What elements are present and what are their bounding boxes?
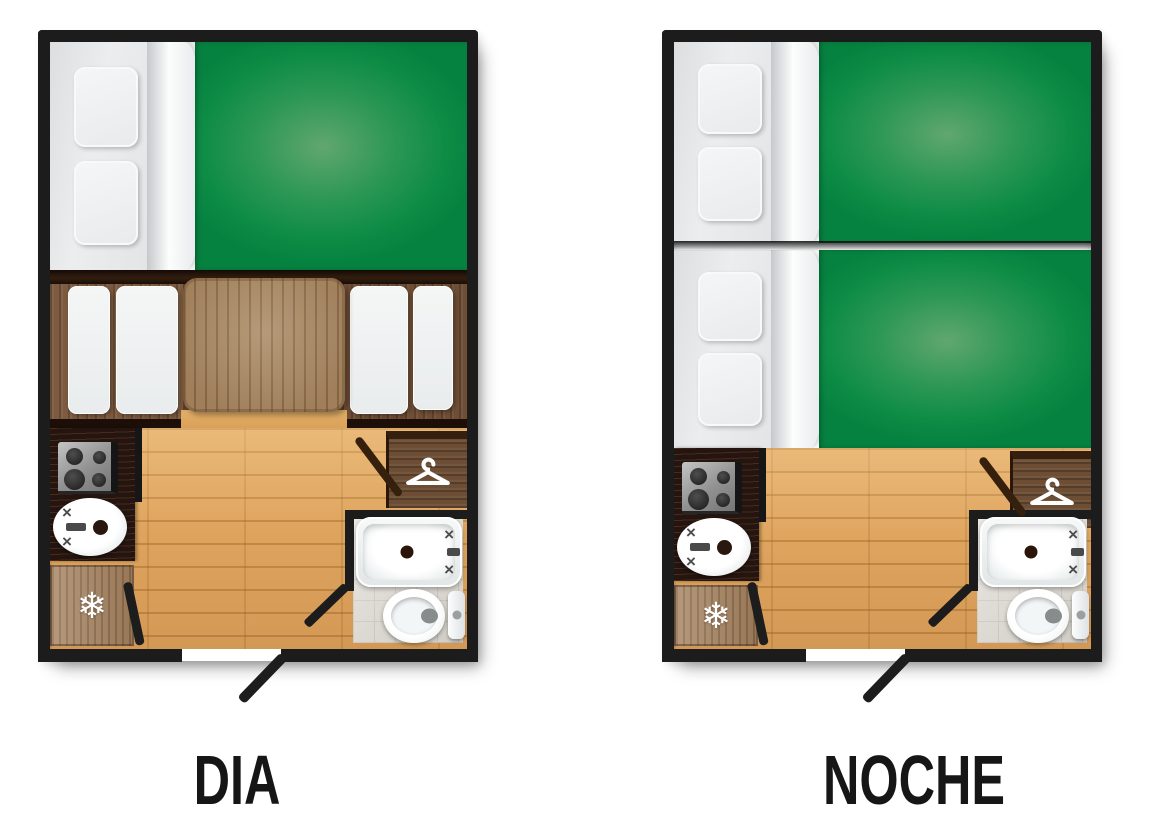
bed-folded-edge <box>147 42 196 270</box>
wall-top <box>662 30 1102 42</box>
wall-top <box>38 30 478 42</box>
plan-interior: × × ❄ <box>674 42 1091 649</box>
basin-drain <box>400 546 413 559</box>
snowflake-icon: ❄ <box>77 588 107 624</box>
bench-cushion <box>68 286 110 414</box>
wall-bottom-left <box>662 649 806 662</box>
wall-left <box>662 30 674 662</box>
toilet-button <box>452 611 461 620</box>
pillow <box>698 353 762 426</box>
stove <box>58 442 118 494</box>
bench-cushion <box>350 286 408 414</box>
faucet-spout <box>690 543 710 551</box>
bed-folded-edge <box>771 42 820 243</box>
floorplan-dia: × × ❄ <box>38 30 478 662</box>
wall-right <box>1091 30 1102 662</box>
fridge: ❄ <box>674 585 758 646</box>
floorplan-noche: × × ❄ <box>662 30 1102 662</box>
burner <box>64 469 85 490</box>
burner <box>66 448 83 465</box>
cross-valve-icon: × <box>62 504 72 521</box>
plan-interior: × × ❄ <box>50 42 467 649</box>
pillow <box>74 161 138 245</box>
cross-valve-icon: × <box>686 553 696 570</box>
bathroom-wall <box>345 510 354 591</box>
wall-bottom-left <box>38 649 182 662</box>
hanger-icon <box>1025 475 1079 513</box>
toilet-button <box>1076 611 1085 620</box>
cross-valve-icon: × <box>1068 526 1078 543</box>
wall-bottom-right <box>281 649 478 662</box>
cross-valve-icon: × <box>444 561 454 578</box>
cross-valve-icon: × <box>62 533 72 550</box>
pillow <box>74 67 138 147</box>
faucet-spout <box>66 523 86 531</box>
bath-basin: × × <box>356 517 462 587</box>
toilet-tank <box>1072 591 1089 639</box>
dinette-area <box>50 284 467 428</box>
converted-bed <box>674 250 1091 448</box>
bed-blanket <box>819 42 1091 243</box>
bed-blanket <box>195 42 467 270</box>
bath-basin: × × <box>980 517 1086 587</box>
sink-drain <box>93 520 108 535</box>
double-bed <box>674 42 1091 243</box>
double-bed <box>50 42 467 270</box>
pillow <box>698 272 762 341</box>
faucet-spout <box>1071 548 1084 556</box>
pillow <box>698 64 762 134</box>
snowflake-icon: ❄ <box>701 598 731 634</box>
bench-cushion <box>116 286 178 414</box>
toilet <box>383 589 445 643</box>
kitchen-sink: × × <box>677 518 751 576</box>
toilet <box>1007 589 1069 643</box>
kitchen-sink: × × <box>53 498 127 556</box>
bench-cushion <box>413 286 453 410</box>
wall-bottom-right <box>905 649 1102 662</box>
cross-valve-icon: × <box>1068 561 1078 578</box>
wall-right <box>467 30 478 662</box>
cross-valve-icon: × <box>444 526 454 543</box>
cross-valve-icon: × <box>686 524 696 541</box>
faucet-spout <box>447 548 460 556</box>
toilet-flush <box>1045 609 1062 624</box>
plan-label-noche: NOCHE <box>756 745 1073 815</box>
dinette-floor <box>181 410 347 428</box>
counter-edge-wall <box>135 428 142 502</box>
plan-label-dia: DIA <box>79 745 396 815</box>
bed-seam-shadow <box>674 241 1091 251</box>
burner <box>717 471 730 484</box>
fridge: ❄ <box>50 565 134 646</box>
burner <box>688 489 709 510</box>
canvas: × × ❄ <box>0 0 1150 829</box>
basin-drain <box>1024 546 1037 559</box>
living-section: × × ❄ <box>674 448 1091 649</box>
pillow <box>698 147 762 221</box>
burner <box>716 493 730 507</box>
burner <box>92 473 106 487</box>
sink-drain <box>717 540 732 555</box>
hanger-icon <box>401 455 455 493</box>
counter-edge-wall <box>759 448 766 522</box>
bed-folded-edge <box>771 250 820 448</box>
burner <box>690 468 707 485</box>
burner <box>93 451 106 464</box>
bathroom-wall <box>969 510 978 591</box>
toilet-tank <box>448 591 465 639</box>
bed-blanket <box>819 250 1091 448</box>
wall-left <box>38 30 50 662</box>
stove <box>682 462 742 514</box>
toilet-flush <box>421 609 438 624</box>
dinette-table <box>183 278 345 412</box>
living-section: × × ❄ <box>50 428 467 649</box>
